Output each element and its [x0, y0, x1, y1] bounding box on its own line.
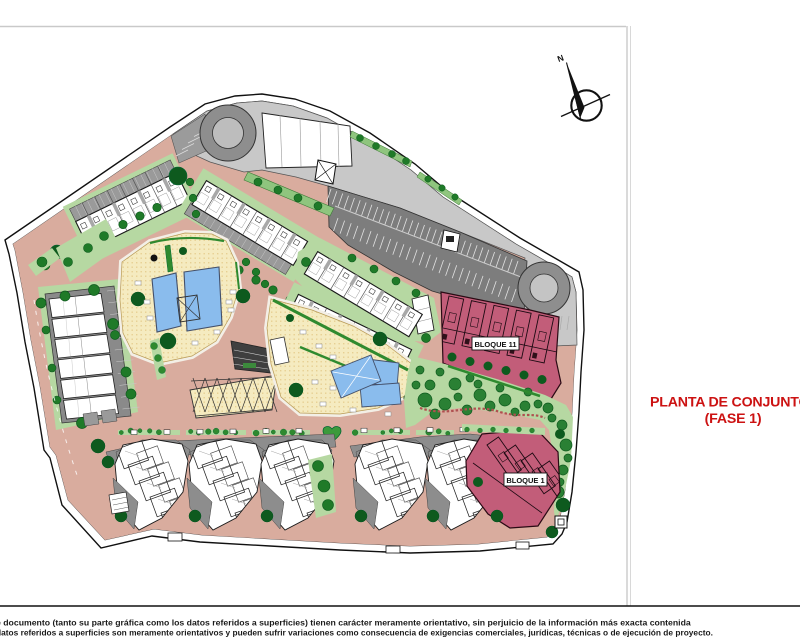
svg-text:e documento (tanto su parte gr: e documento (tanto su parte gráfica como… — [0, 618, 691, 628]
svg-text:PLANTA DE CONJUNTO: PLANTA DE CONJUNTO — [650, 395, 800, 411]
svg-text:BLOQUE 1: BLOQUE 1 — [506, 476, 544, 485]
svg-text:(FASE 1): (FASE 1) — [705, 411, 762, 427]
svg-text:N: N — [556, 53, 565, 64]
svg-text:datos referidos a superficies: datos referidos a superficies son merame… — [0, 628, 713, 638]
svg-text:BLOQUE 11: BLOQUE 11 — [474, 340, 516, 349]
